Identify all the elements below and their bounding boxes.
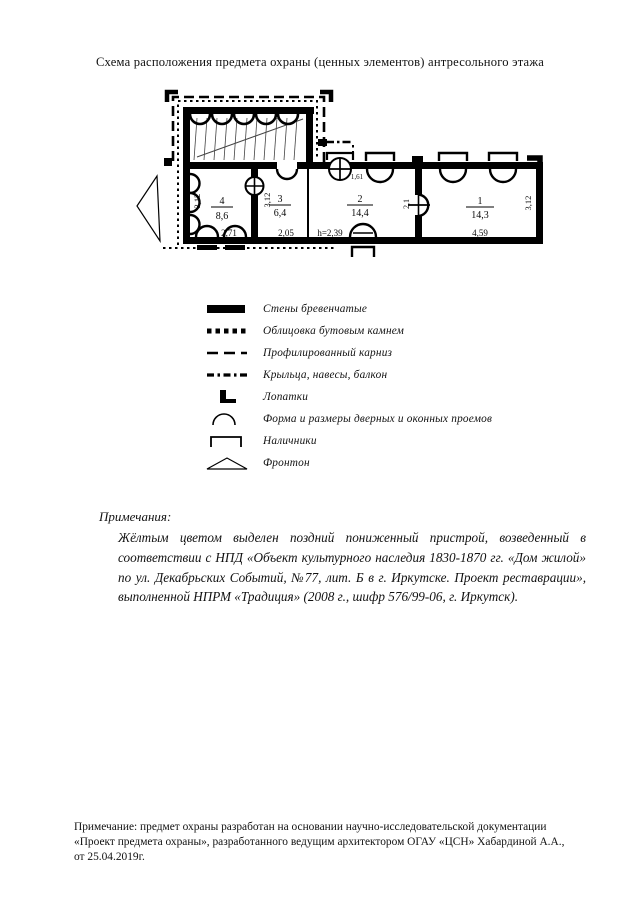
room-4-area: 8,6 xyxy=(216,211,229,222)
dim-room4-width: 2,71 xyxy=(221,228,237,238)
pilaster-icon xyxy=(205,389,263,405)
room-1-area: 14,3 xyxy=(471,210,489,221)
legend-label: Лопатки xyxy=(263,391,308,403)
annex-arch-openings xyxy=(190,114,298,124)
floor-plan: 1 14,3 2 14,4 3 6,4 4 8,6 2,71 2,05 h=2,… xyxy=(125,84,557,262)
room-3-number: 3 xyxy=(278,194,283,205)
dim-room3-depth: 3,12 xyxy=(262,193,272,208)
rubble-facing-icon xyxy=(205,323,263,339)
balcony-dashdot-icon xyxy=(205,367,263,383)
legend-item-openings: Форма и размеры дверных и оконных проемо… xyxy=(205,408,492,430)
dim-room1-depth: 3,12 xyxy=(523,196,533,211)
dim-room2-height: h=2,39 xyxy=(317,228,343,238)
casing-icon xyxy=(205,433,263,449)
legend-label: Стены бревенчатые xyxy=(263,303,367,315)
legend-item-cornice: Профилированный карниз xyxy=(205,342,492,364)
room-2-area: 14,4 xyxy=(351,208,369,219)
legend-label: Облицовка бутовым камнем xyxy=(263,325,404,337)
dim-window-width: 1,61 xyxy=(351,173,364,181)
legend-item-pilasters: Лопатки xyxy=(205,386,492,408)
legend-label: Профилированный карниз xyxy=(263,347,392,359)
pediment-symbol xyxy=(137,176,160,241)
room-4-number: 4 xyxy=(220,196,225,207)
opening-arc-icon xyxy=(205,411,263,427)
dim-room3-width: 2,05 xyxy=(278,228,294,238)
legend-label: Фронтон xyxy=(263,457,310,469)
dim-room1-width: 4,59 xyxy=(472,228,488,238)
room3-door-arc xyxy=(277,169,297,179)
door-rooms4-3 xyxy=(246,177,264,195)
legend-item-rubble-facing: Облицовка бутовым камнем xyxy=(205,320,492,342)
legend-item-casings: Наличники xyxy=(205,430,492,452)
pediment-icon xyxy=(205,455,263,471)
door-rooms2-1 xyxy=(408,195,430,217)
footer-note: Примечание: предмет охраны разработан на… xyxy=(74,820,568,865)
notes-heading: Примечания: xyxy=(99,509,588,525)
dim-room4-depth: 3,12 xyxy=(192,194,202,209)
cornice-icon xyxy=(205,345,263,361)
legend-label: Форма и размеры дверных и оконных проемо… xyxy=(263,413,492,425)
legend-item-balcony: Крыльца, навесы, балкон xyxy=(205,364,492,386)
notes-section: Примечания: Жёлтым цветом выделен поздни… xyxy=(99,509,588,607)
log-walls-icon xyxy=(205,301,263,317)
legend: Стены бревенчатые Облицовка бутовым камн… xyxy=(205,298,492,474)
legend-item-pediment: Фронтон xyxy=(205,452,492,474)
legend-label: Крыльца, навесы, балкон xyxy=(263,369,387,381)
room2-glazed-opening xyxy=(327,153,353,180)
page-title: Схема расположения предмета охраны (ценн… xyxy=(0,55,640,70)
notes-body: Жёлтым цветом выделен поздний пониженный… xyxy=(118,528,586,607)
legend-item-log-walls: Стены бревенчатые xyxy=(205,298,492,320)
room-3-area: 6,4 xyxy=(274,208,287,219)
scanned-document-page: { "title": "Схема расположения предмета … xyxy=(0,0,640,900)
legend-label: Наличники xyxy=(263,435,317,447)
dim-door-width: 2,1 xyxy=(402,199,411,209)
room-1-number: 1 xyxy=(478,196,483,207)
room-2-number: 2 xyxy=(358,194,363,205)
